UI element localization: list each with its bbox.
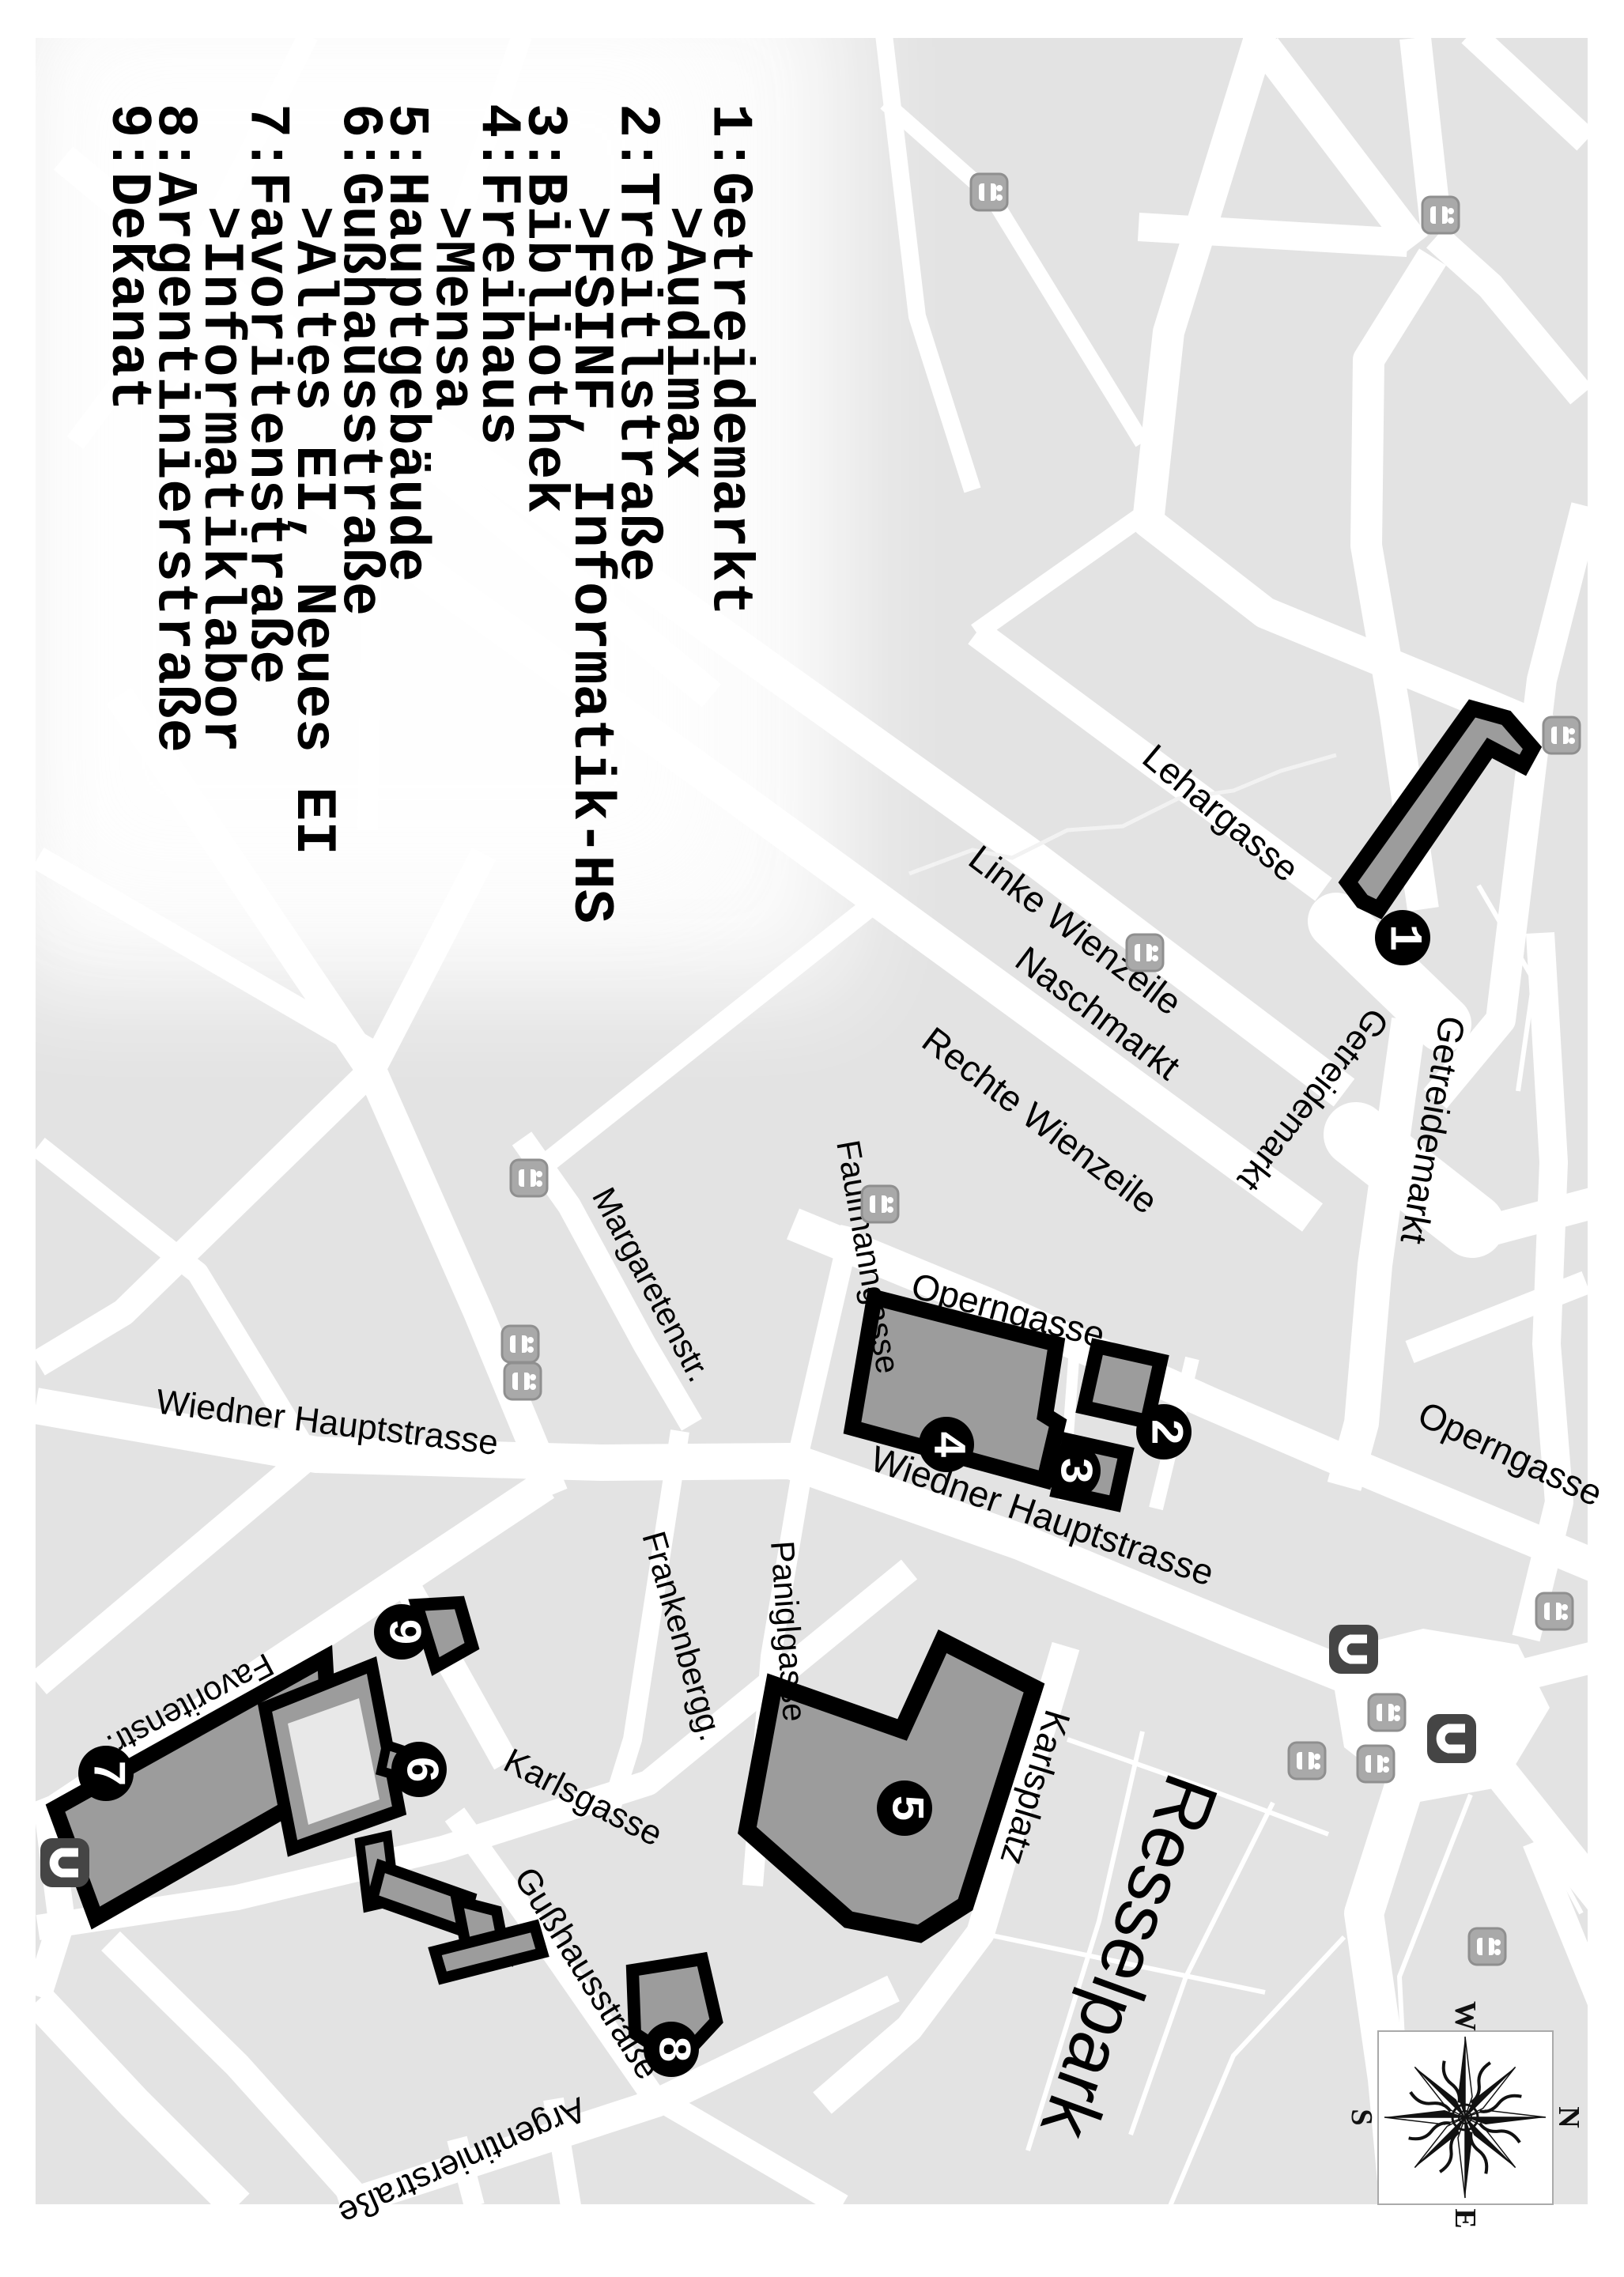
svg-text:E: E — [1448, 2208, 1482, 2228]
svg-text:6: 6 — [394, 1756, 445, 1784]
svg-text:7: 7 — [81, 1760, 132, 1788]
svg-text:9: 9 — [376, 1618, 428, 1646]
svg-text:5: 5 — [879, 1795, 931, 1822]
svg-text:1: 1 — [1377, 924, 1429, 952]
svg-text:N: N — [1552, 2106, 1585, 2128]
svg-text:3: 3 — [1048, 1457, 1099, 1485]
svg-text:4: 4 — [921, 1431, 973, 1459]
svg-text:W: W — [1448, 2001, 1482, 2031]
svg-text:9:Dekanat: 9:Dekanat — [96, 104, 161, 411]
svg-text:S: S — [1345, 2109, 1378, 2125]
svg-text:2: 2 — [1139, 1418, 1190, 1446]
svg-text:8: 8 — [646, 2036, 697, 2064]
